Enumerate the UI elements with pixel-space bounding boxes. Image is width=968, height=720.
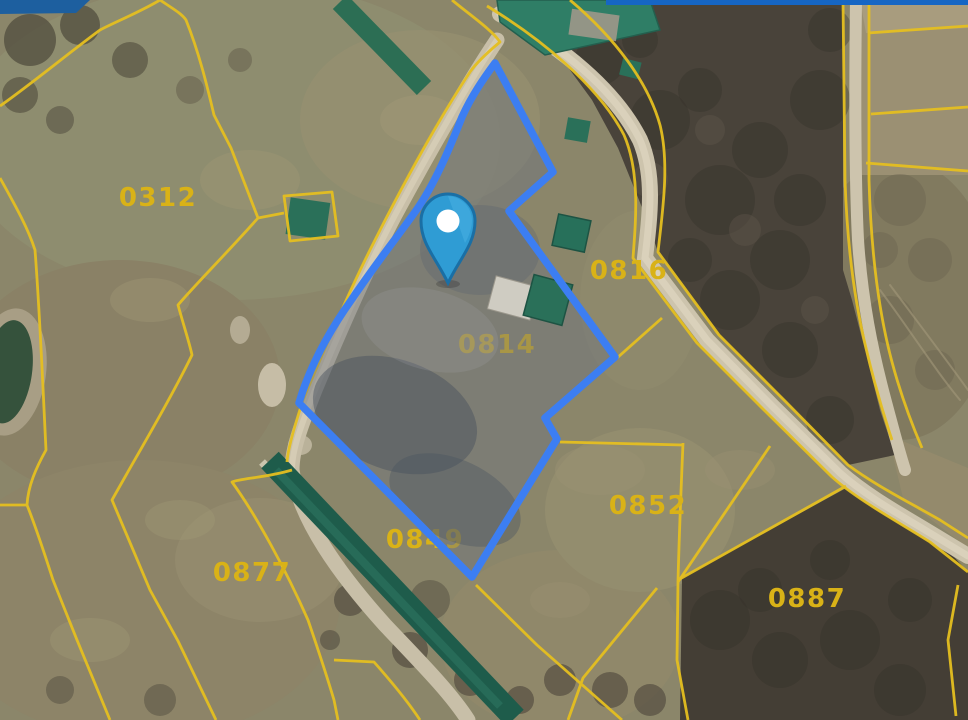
map-canvas[interactable]: 0312 0814 0816 0849 0852 0877 0887 [0, 0, 968, 720]
top-left-blue-roof [0, 0, 90, 14]
parcel-label-0877[interactable]: 0877 [213, 558, 291, 588]
small-building-3 [552, 214, 591, 252]
top-right-blue-bar [606, 0, 968, 5]
small-building-west [286, 197, 331, 239]
small-building-2 [564, 117, 590, 143]
parcel-label-0852[interactable]: 0852 [609, 491, 687, 521]
parcel-label-0887[interactable]: 0887 [768, 584, 846, 614]
satellite-map: 0312 0814 0816 0849 0852 0877 0887 [0, 0, 968, 720]
parcel-label-0816[interactable]: 0816 [590, 256, 668, 286]
parcel-label-0312[interactable]: 0312 [119, 183, 197, 213]
pin-ring [437, 210, 460, 233]
